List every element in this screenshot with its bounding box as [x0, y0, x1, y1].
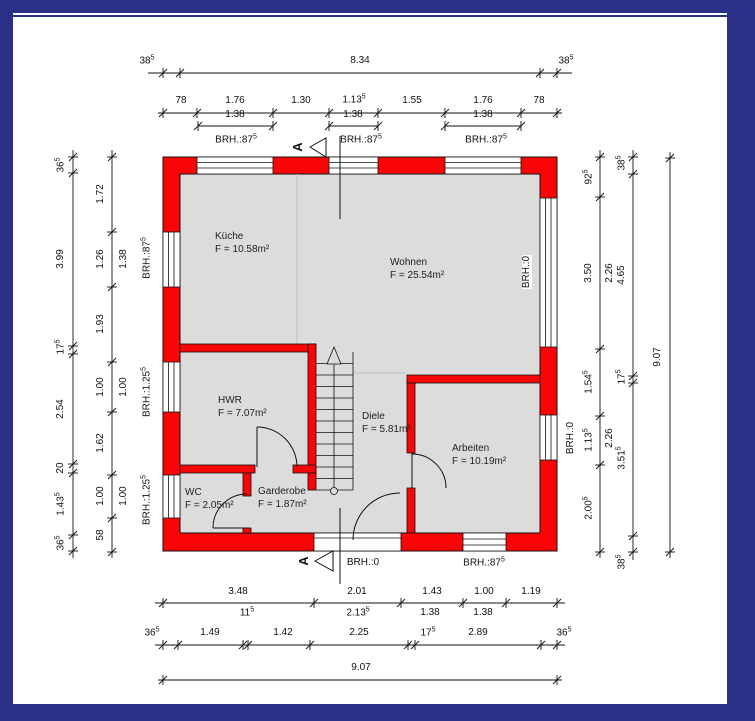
rooms-diele-area: F = 5.81m² — [362, 425, 411, 435]
dimensions-bottom-row2-4: 175 — [420, 627, 435, 638]
rooms-diele-name: Diele — [362, 412, 385, 422]
dimensions-left-outer-4: 20 — [56, 462, 66, 473]
dimensions-bottom-row1-3: 1.00 — [474, 587, 493, 597]
dimensions-top-row1-3: 1.135 — [342, 94, 365, 105]
dimensions-top-glass-1: 1.38 — [343, 110, 362, 120]
dimensions-top-row0-0: 385 — [139, 55, 154, 66]
entrance-opening — [314, 533, 401, 551]
dimensions-right-inner-3: 1.135 — [583, 428, 594, 451]
dimensions-left-outer-0: 365 — [55, 157, 66, 172]
section_marker-label: A — [299, 556, 309, 565]
dimensions-top-row1-1: 1.76 — [225, 96, 244, 106]
rooms-hwr-name: HWR — [218, 396, 242, 406]
dimensions-left-outer-5: 1.435 — [55, 492, 66, 515]
exterior-wall — [163, 157, 557, 551]
floor-plan-page: 3858.34385781.761.301.1351.551.76781.381… — [0, 0, 755, 721]
rooms-wc-area: F = 2.05m² — [185, 501, 234, 511]
floor — [180, 174, 540, 533]
rooms-hwr-area: F = 7.07m² — [218, 409, 267, 419]
dimensions-left-glass-1: 1.00 — [119, 377, 129, 396]
dimensions-top-glass-2: 1.38 — [473, 110, 492, 120]
dimensions-right-mid-3: 3.515 — [616, 446, 627, 469]
rooms-wohnen-area: F = 25.54m² — [390, 271, 444, 281]
dimensions-right-mid-0: 385 — [616, 155, 627, 170]
dimensions-top-row1-0: 78 — [175, 96, 186, 106]
dimensions-right-inner-1: 3.50 — [584, 263, 594, 282]
dimensions-left-inner-5: 1.00 — [96, 486, 106, 505]
dimensions-bottom-row2-2: 1.42 — [273, 628, 292, 638]
rooms-garderobe-name: Garderobe — [258, 487, 306, 497]
dimensions-left-outer-3: 2.54 — [56, 399, 66, 418]
dimensions-left-inner-1: 1.26 — [96, 249, 106, 268]
dimensions-right-glass-1: 2.26 — [605, 428, 615, 447]
dimensions-bottom-row2-6: 365 — [556, 627, 571, 638]
dimensions-bottom-row2-3: 2.25 — [349, 628, 368, 638]
rooms-arbeiten-area: F = 10.19m² — [452, 457, 506, 467]
section_marker-label: A — [293, 142, 303, 151]
dimensions-left-outer-2: 175 — [55, 339, 66, 354]
dimensions-top-row1-4: 1.55 — [402, 96, 421, 106]
dimensions-left-outer-6: 365 — [55, 535, 66, 550]
dimensions-bottom-sub-0: 115 — [240, 607, 254, 618]
dimensions-left-inner-2: 1.93 — [96, 314, 106, 333]
dimensions-top-row1-6: 78 — [533, 96, 544, 106]
rooms-garderobe-area: F = 1.87m² — [258, 500, 307, 510]
dimensions-left-outer-1: 3.99 — [56, 249, 66, 268]
dimensions-bottom-row2-0: 365 — [144, 627, 159, 638]
rooms-wc-name: WC — [185, 488, 202, 498]
dimensions-left-brh-2: BRH.:1.255 — [141, 475, 152, 525]
dimensions-bottom-row1-4: 1.19 — [521, 587, 540, 597]
dimensions-left-brh-0: BRH.:875 — [141, 237, 152, 279]
dimensions-bottom-total: 9.07 — [351, 663, 370, 673]
stairs-walking-line-start — [331, 488, 338, 495]
dimensions-top-brh-1: BRH.:875 — [340, 134, 382, 145]
floor-plan-svg — [0, 0, 755, 721]
dimensions-bottom-row2-5: 2.89 — [468, 628, 487, 638]
dimensions-left-brh-1: BRH.:1.255 — [141, 367, 152, 417]
dimensions-left-inner-3: 1.00 — [96, 377, 106, 396]
dimensions-top-glass-0: 1.38 — [225, 110, 244, 120]
dimensions-top-brh-0: BRH.:875 — [215, 134, 257, 145]
dimensions-right-brh-0: BRH.:0 — [522, 255, 532, 289]
dimensions-top-row0-2: 385 — [558, 55, 573, 66]
dimensions-top-brh-2: BRH.:875 — [465, 134, 507, 145]
dimensions-bottom-brh-1: BRH.:875 — [463, 557, 505, 568]
dimensions-left-inner-0: 1.72 — [96, 184, 106, 203]
section-arrow-top-icon — [310, 138, 326, 157]
dimensions-bottom-brh-0: BRH.:0 — [347, 558, 379, 568]
dimensions-bottom-sub-2: 1.38 — [420, 608, 439, 618]
rooms-arbeiten-name: Arbeiten — [452, 444, 489, 454]
dimensions-right-mid-1: 4.65 — [617, 265, 627, 284]
dimensions-right-total: 9.07 — [653, 347, 663, 366]
dimensions-right-inner-4: 2.005 — [583, 496, 594, 519]
dimensions-right-brh-1: BRH.:0 — [566, 422, 576, 454]
dimensions-bottom-row2-1: 1.49 — [200, 628, 219, 638]
dimensions-left-glass-0: 1.38 — [119, 249, 129, 268]
dimensions-bottom-sub-3: 1.38 — [473, 608, 492, 618]
dimensions-top-row1-5: 1.76 — [473, 96, 492, 106]
rooms-wohnen-name: Wohnen — [390, 258, 427, 268]
dimensions-bottom-row1-1: 2.01 — [347, 587, 366, 597]
dimensions-right-glass-0: 2.26 — [605, 263, 615, 282]
dimensions-bottom-sub-1: 2.135 — [346, 607, 369, 618]
rooms-kueche-area: F = 10.58m² — [215, 245, 269, 255]
dimensions-left-inner-4: 1.62 — [96, 433, 106, 452]
dimensions-top-row1-2: 1.30 — [291, 96, 310, 106]
dimensions-right-inner-0: 925 — [583, 169, 594, 184]
dimensions-right-inner-2: 1.545 — [583, 370, 594, 393]
dimensions-bottom-row1-0: 3.48 — [228, 587, 247, 597]
dimensions-top-row0-1: 8.34 — [350, 56, 369, 66]
dimensions-right-mid-4: 385 — [616, 554, 627, 569]
dimensions-bottom-row1-2: 1.43 — [422, 587, 441, 597]
section-arrow-bottom-icon — [315, 551, 333, 571]
dimensions-left-glass-2: 1.00 — [119, 486, 129, 505]
rooms-kueche-name: Küche — [215, 232, 243, 242]
dimensions-right-mid-2: 175 — [616, 369, 627, 384]
dimensions-left-inner-6: 58 — [96, 529, 106, 540]
